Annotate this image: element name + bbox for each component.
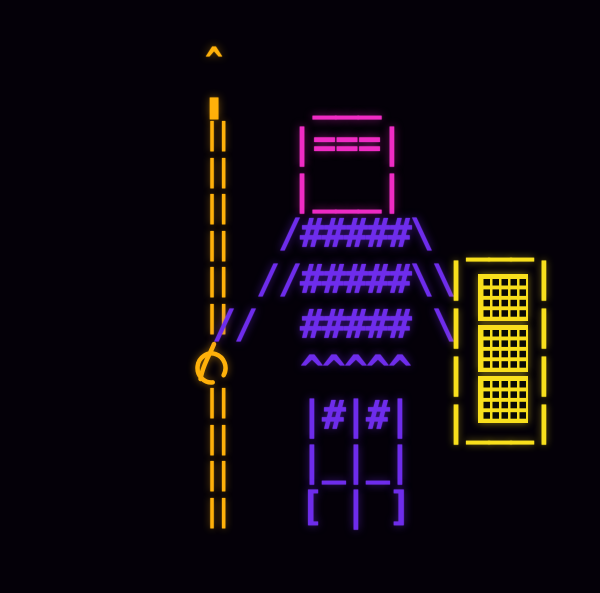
- helmet-crown: ___: [290, 74, 380, 121]
- ascii-art-scene: ^ ▮ || || || || || || || || || || ___ |=…: [0, 0, 600, 593]
- shield-emblem-icon: [478, 376, 528, 423]
- shield-emblem-icon: [478, 274, 528, 321]
- shield-emblem-icon: [478, 325, 528, 372]
- spear-tip: ^ ▮: [205, 40, 223, 129]
- helmet-face: |===| |___|: [290, 121, 402, 215]
- armor-body: /#####\ //#####\\ // ##### \ ^^^^^ |#|#|…: [212, 212, 454, 531]
